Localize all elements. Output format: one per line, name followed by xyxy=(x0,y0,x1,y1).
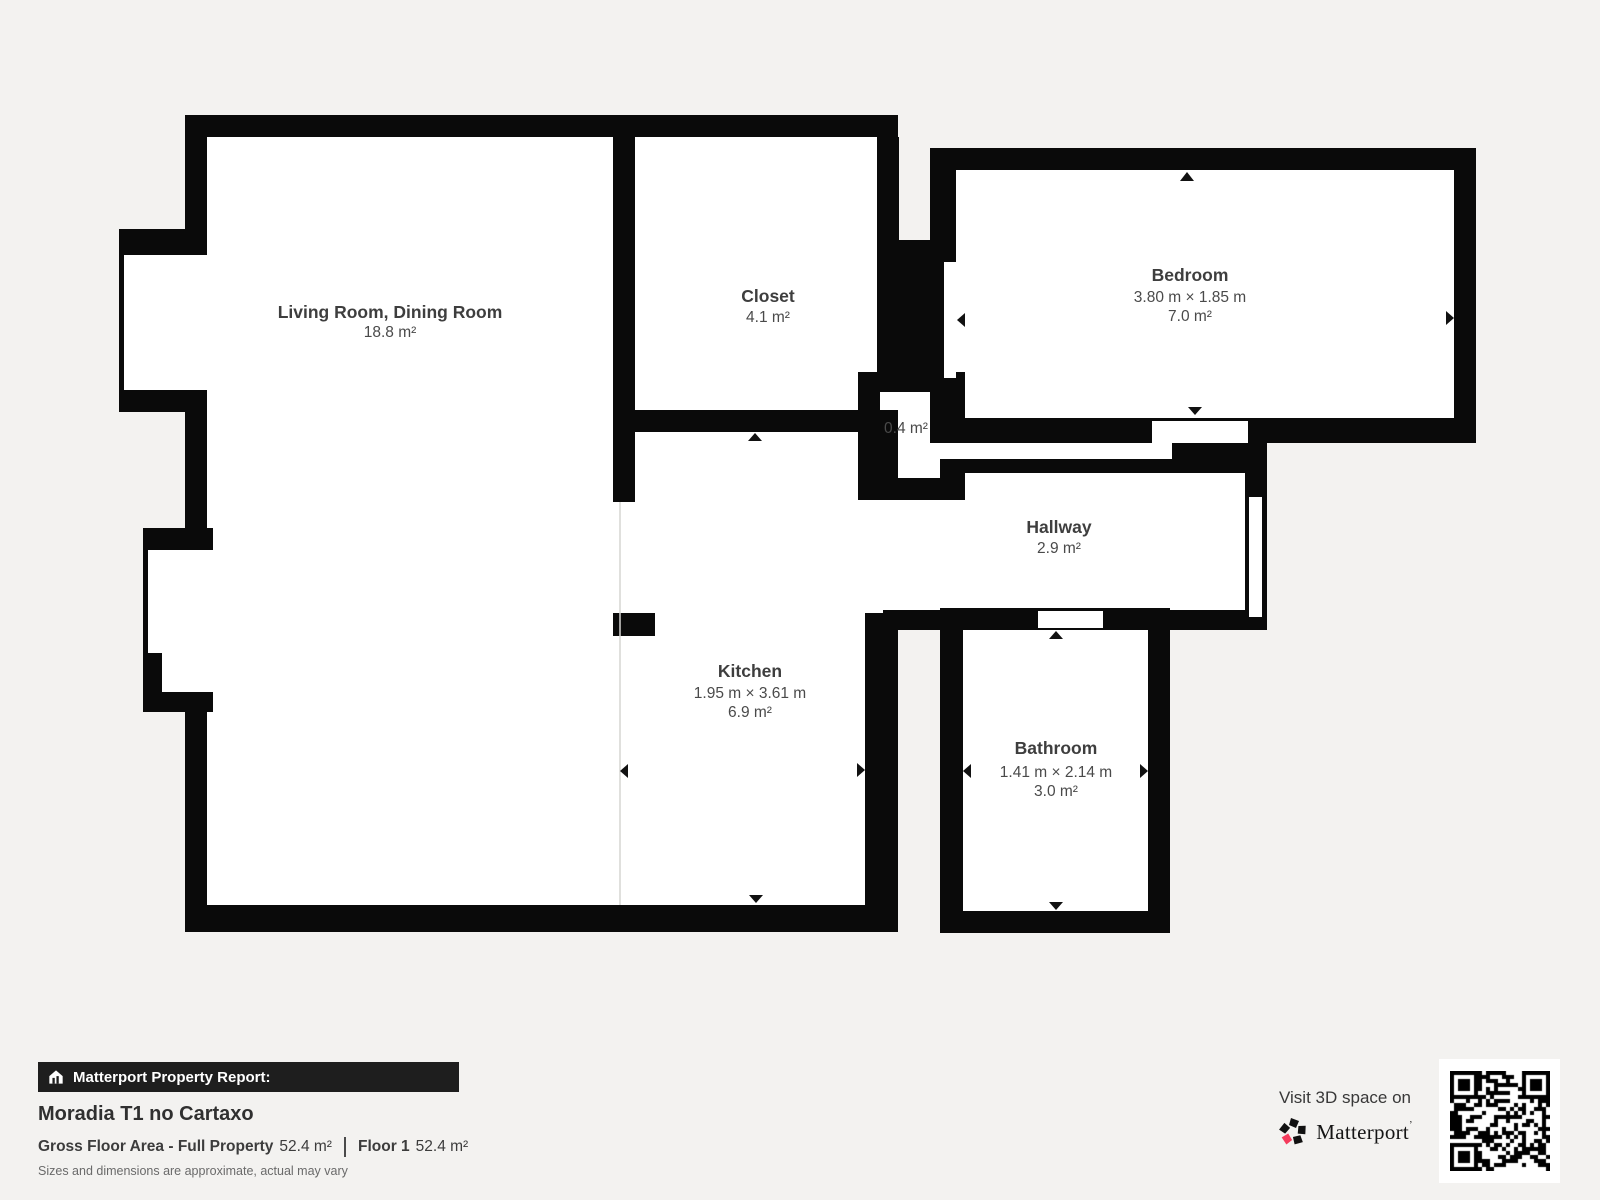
house-report-icon xyxy=(48,1069,64,1085)
room-label-bedroom-title: Bedroom xyxy=(1152,265,1229,285)
qr-card xyxy=(1439,1059,1560,1183)
room-label-living-area: 18.8 m² xyxy=(364,324,417,341)
visit-3d-label: Visit 3D space on xyxy=(1245,1088,1445,1108)
room-label-kitchen-area: 6.9 m² xyxy=(728,704,772,721)
property-report-page: Living Room, Dining Room 18.8 m² Closet … xyxy=(0,0,1600,1200)
room-label-bathroom-area: 3.0 m² xyxy=(1034,783,1078,800)
room-label-hallway-area: 2.9 m² xyxy=(1037,540,1081,557)
bedroom-hall-door xyxy=(1152,421,1248,443)
hallway-window xyxy=(1249,497,1262,617)
room-label-bedroom-area: 7.0 m² xyxy=(1168,308,1212,325)
room-label-hallway-title: Hallway xyxy=(1026,517,1091,537)
floor-label: Floor 1 xyxy=(358,1138,410,1156)
property-title: Moradia T1 no Cartaxo xyxy=(38,1103,254,1126)
gross-area-value: 52.4 m² xyxy=(279,1138,332,1156)
summary-divider xyxy=(344,1137,346,1157)
room-label-closet-area: 4.1 m² xyxy=(746,309,790,326)
matterport-logo: Matterport’ xyxy=(1245,1116,1445,1148)
floor-area-summary: Gross Floor Area - Full Property 52.4 m²… xyxy=(38,1137,468,1157)
room-label-living-title: Living Room, Dining Room xyxy=(278,302,503,322)
room-label-bathroom-title: Bathroom xyxy=(1015,738,1098,758)
room-floors xyxy=(119,115,1476,933)
bedroom-door xyxy=(944,262,956,378)
room-label-bathroom-dims: 1.41 m × 2.14 m xyxy=(1000,764,1112,781)
disclaimer-text: Sizes and dimensions are approximate, ac… xyxy=(38,1164,348,1178)
matterport-pinwheel-icon xyxy=(1277,1116,1309,1148)
matterport-wordmark: Matterport’ xyxy=(1316,1120,1412,1145)
floor-plan: Living Room, Dining Room 18.8 m² Closet … xyxy=(0,0,1600,1040)
qr-code xyxy=(1450,1071,1550,1171)
room-label-kitchen-title: Kitchen xyxy=(718,661,782,681)
room-label-vestibule-area: 0.4 m² xyxy=(884,420,928,437)
floor-value: 52.4 m² xyxy=(416,1138,469,1156)
room-label-kitchen-dims: 1.95 m × 3.61 m xyxy=(694,685,806,702)
report-badge-bar: Matterport Property Report: xyxy=(38,1062,459,1092)
room-label-closet-title: Closet xyxy=(741,286,795,306)
room-label-bedroom-dims: 3.80 m × 1.85 m xyxy=(1134,289,1246,306)
matterport-promo: Visit 3D space on Matterport’ xyxy=(1245,1088,1445,1148)
bathroom-door xyxy=(1038,611,1103,628)
report-badge-label: Matterport Property Report: xyxy=(73,1069,271,1086)
gross-area-label: Gross Floor Area - Full Property xyxy=(38,1138,273,1156)
